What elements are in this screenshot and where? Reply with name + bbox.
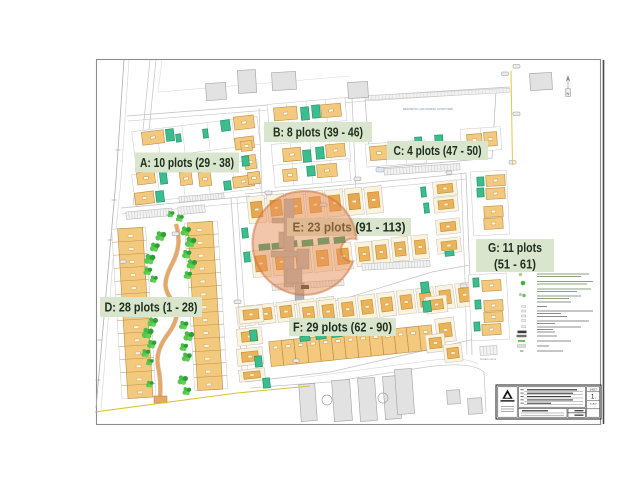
svg-text:SCALE: SCALE (590, 403, 598, 406)
svg-text:(51 - 61): (51 - 61) (494, 256, 536, 271)
svg-text:C: 4 plots (47 - 50): C: 4 plots (47 - 50) (394, 143, 482, 158)
svg-text:1.: 1. (591, 394, 596, 400)
svg-text:F: 29 plots (62 - 90): F: 29 plots (62 - 90) (293, 320, 392, 335)
svg-text:B: 8 plots (39 - 46): B: 8 plots (39 - 46) (273, 125, 363, 140)
svg-text:N: N (567, 91, 570, 96)
svg-text:G: 11 plots: G: 11 plots (488, 240, 542, 255)
svg-text:SHEET: SHEET (589, 389, 597, 391)
svg-text:A: 10 plots (29 - 38): A: 10 plots (29 - 38) (140, 155, 234, 170)
svg-text:D: 28 plots (1 - 28): D: 28 plots (1 - 28) (105, 300, 198, 315)
svg-text:PRIVATE DRIVE: PRIVATE DRIVE (480, 358, 497, 361)
svg-text:RESIDENTS CAR PARKING COURTYAR: RESIDENTS CAR PARKING COURTYARD (403, 107, 453, 111)
